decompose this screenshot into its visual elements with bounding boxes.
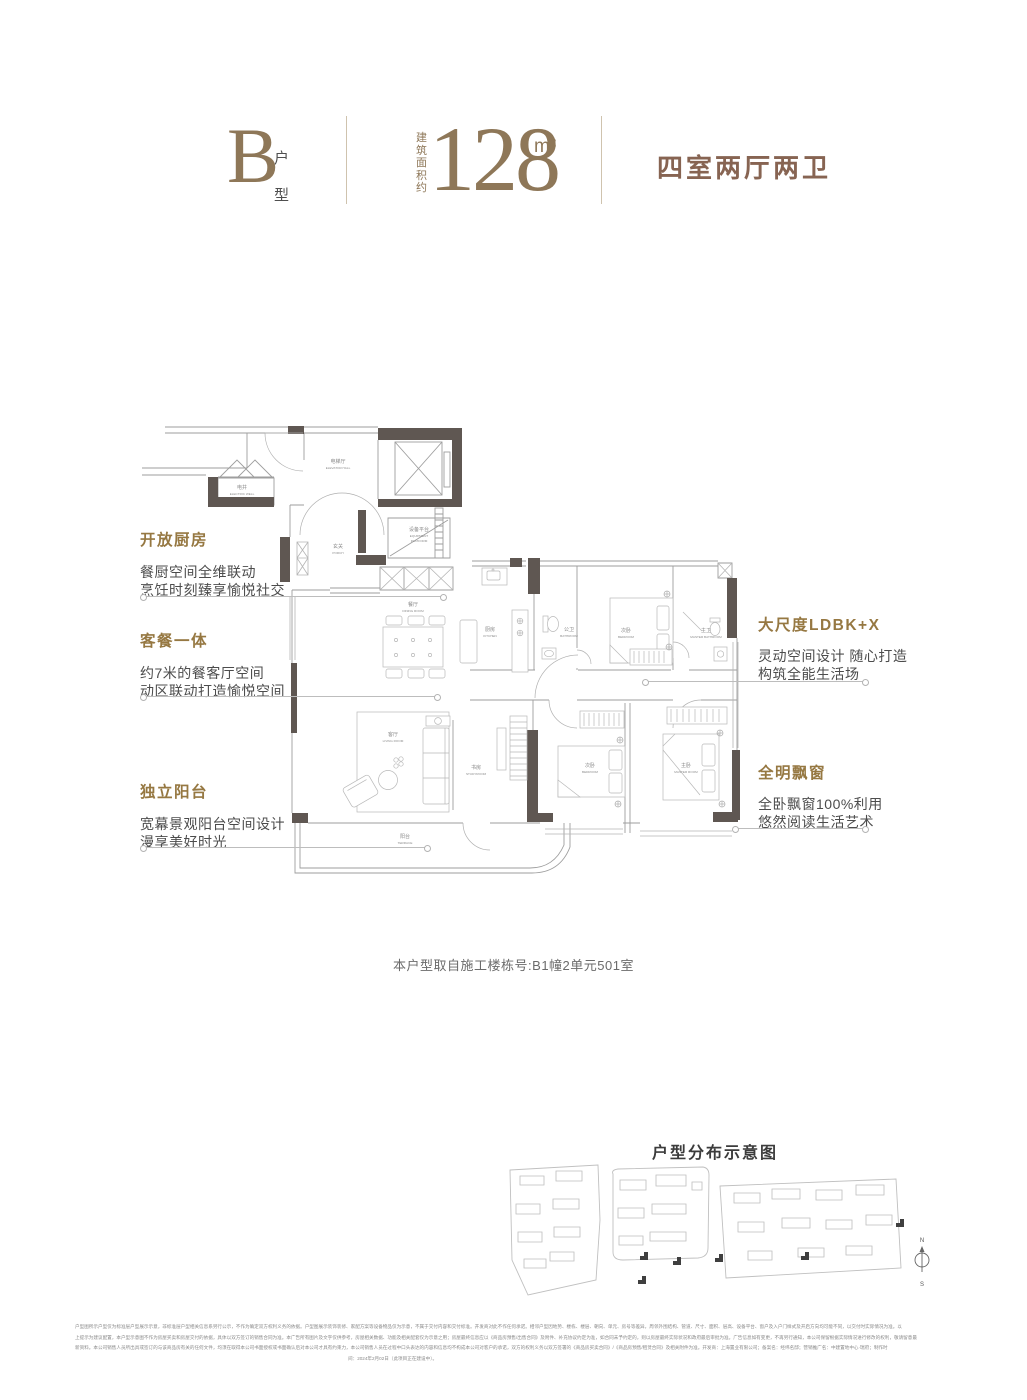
- annotation-dining-living: 客餐一体 约7米的餐客厅空间 动区联动打造愉悦空间: [140, 629, 285, 700]
- compass-icon: N S: [915, 1238, 929, 1288]
- siteplan-svg: N S: [498, 1160, 943, 1310]
- leader-dot: [642, 679, 649, 686]
- leader-line: [143, 847, 427, 848]
- annotation-line: 漫享美好时光: [140, 833, 285, 851]
- source-unit-caption: 本户型取自施工楼栋号:B1幢2单元501室: [0, 955, 1027, 974]
- room-label-bedroom-upper: 次卧: [621, 627, 631, 634]
- compass-north-label: N: [920, 1238, 924, 1244]
- leader-line: [645, 681, 865, 682]
- svg-text:LIVING ROOM: LIVING ROOM: [383, 739, 404, 743]
- svg-text:ELECTRIC WELL: ELECTRIC WELL: [230, 492, 255, 496]
- leader-dot: [140, 594, 147, 601]
- annotation-line: 灵动空间设计 随心打造: [758, 647, 907, 665]
- leader-dot: [862, 679, 869, 686]
- annotation-line: 约7米的餐客厅空间: [140, 664, 285, 682]
- leader-dot: [440, 594, 447, 601]
- header-divider-right: [601, 116, 602, 204]
- leader-line: [143, 696, 437, 697]
- room-label-bathroom: 公卫: [564, 627, 574, 633]
- header-divider-left: [346, 116, 347, 204]
- legal-disclaimer: 户型图所示户型仅为标准层户型展示示意，非标准层户型相关信息系另行公示，不作为确定…: [75, 1322, 955, 1365]
- annotation-title: 大尺度LDBK+X: [758, 613, 907, 635]
- brochure-page: B 户型 建筑面积约 128 m² 四室两厅两卫: [0, 0, 1027, 1400]
- room-label-elevator-hall: 电梯厅: [330, 458, 345, 465]
- annotation-line: 宽幕景观阳台空间设计: [140, 815, 285, 833]
- leader-dot: [424, 845, 431, 852]
- area-unit: m²: [534, 136, 556, 158]
- annotation-line: 动区联动打造愉悦空间: [140, 682, 285, 700]
- annotation-title: 客餐一体: [140, 629, 285, 651]
- leader-dot: [434, 694, 441, 701]
- annotation-balcony: 独立阳台 宽幕景观阳台空间设计 漫享美好时光: [140, 780, 285, 851]
- disclaimer-line: 间：2024年2月02日（此项目正在建设中）。: [75, 1354, 955, 1365]
- leader-line: [735, 828, 865, 829]
- svg-text:MASTER ROOM: MASTER ROOM: [674, 770, 698, 774]
- leader-dot: [140, 694, 147, 701]
- room-label-study: 书房: [471, 764, 481, 771]
- leader-dot: [140, 845, 147, 852]
- svg-text:DINING ROOM: DINING ROOM: [402, 609, 424, 613]
- compass-south-label: S: [920, 1282, 924, 1288]
- disclaimer-line: 上提示为建议配置，本户型示意图不作为房屋买卖和房屋交付的依据，具体以双方签订的销…: [75, 1333, 955, 1344]
- svg-text:PORCH: PORCH: [332, 551, 343, 555]
- annotation-open-kitchen: 开放厨房 餐厨空间全维联动 烹饪时刻臻享愉悦社交: [140, 528, 285, 599]
- annotation-title: 全明飘窗: [758, 761, 883, 783]
- annotation-bay-window: 全明飘窗 全卧飘窗100%利用 悠然阅读生活艺术: [758, 761, 883, 831]
- room-label-porch: 玄关: [333, 543, 343, 550]
- annotation-ldbk: 大尺度LDBK+X 灵动空间设计 随心打造 构筑全能生活场: [758, 613, 907, 683]
- room-label-dining: 餐厅: [408, 601, 418, 608]
- svg-text:BATHROOM: BATHROOM: [560, 634, 578, 638]
- svg-text:TERRACE: TERRACE: [398, 841, 413, 845]
- annotation-title: 开放厨房: [140, 528, 285, 550]
- svg-text:ELEVATOR HALL: ELEVATOR HALL: [326, 466, 351, 470]
- leader-dot: [732, 826, 739, 833]
- room-label-master-bathroom: 主卫: [701, 627, 711, 634]
- unit-type-letter: B: [227, 117, 279, 195]
- room-label-bedroom-lower: 次卧: [585, 762, 595, 769]
- svg-text:BEDROOM: BEDROOM: [582, 770, 598, 774]
- area-prefix: 建筑面积约: [416, 132, 429, 195]
- svg-text:PLATFORM: PLATFORM: [411, 539, 428, 543]
- room-label-electric-well: 电井: [237, 484, 247, 491]
- leader-dot: [862, 826, 869, 833]
- room-layout-text: 四室两厅两卫: [657, 148, 831, 185]
- annotation-title: 独立阳台: [140, 780, 285, 802]
- svg-text:STUDYROOM: STUDYROOM: [466, 772, 487, 776]
- svg-text:KITCHEN: KITCHEN: [483, 634, 497, 638]
- room-label-terrace: 阳台: [400, 833, 410, 840]
- room-label-equipment-platform: 设备平台: [409, 526, 429, 533]
- svg-text:EQUIPMENT: EQUIPMENT: [410, 534, 429, 538]
- disclaimer-line: 户型图所示户型仅为标准层户型展示示意，非标准层户型相关信息系另行公示，不作为确定…: [75, 1322, 955, 1333]
- building-footprints: [516, 1171, 892, 1268]
- room-label-kitchen: 厨房: [485, 626, 495, 633]
- room-label-master-room: 主卧: [681, 762, 691, 769]
- svg-text:MASTER BATHROOM: MASTER BATHROOM: [690, 635, 722, 639]
- leader-line: [143, 596, 443, 597]
- room-label-living: 客厅: [388, 731, 398, 738]
- annotation-line: 餐厨空间全维联动: [140, 563, 285, 581]
- svg-text:BEDROOM: BEDROOM: [618, 635, 634, 639]
- unit-type-label: 户型: [274, 140, 291, 214]
- area-value: 128: [429, 116, 558, 203]
- disclaimer-line: 新资料。本公司销售人员所出具或签订的与该商品房有关的任何文件，均须在取得本公司书…: [75, 1343, 955, 1354]
- annotation-line: 全卧飘窗100%利用: [758, 795, 883, 813]
